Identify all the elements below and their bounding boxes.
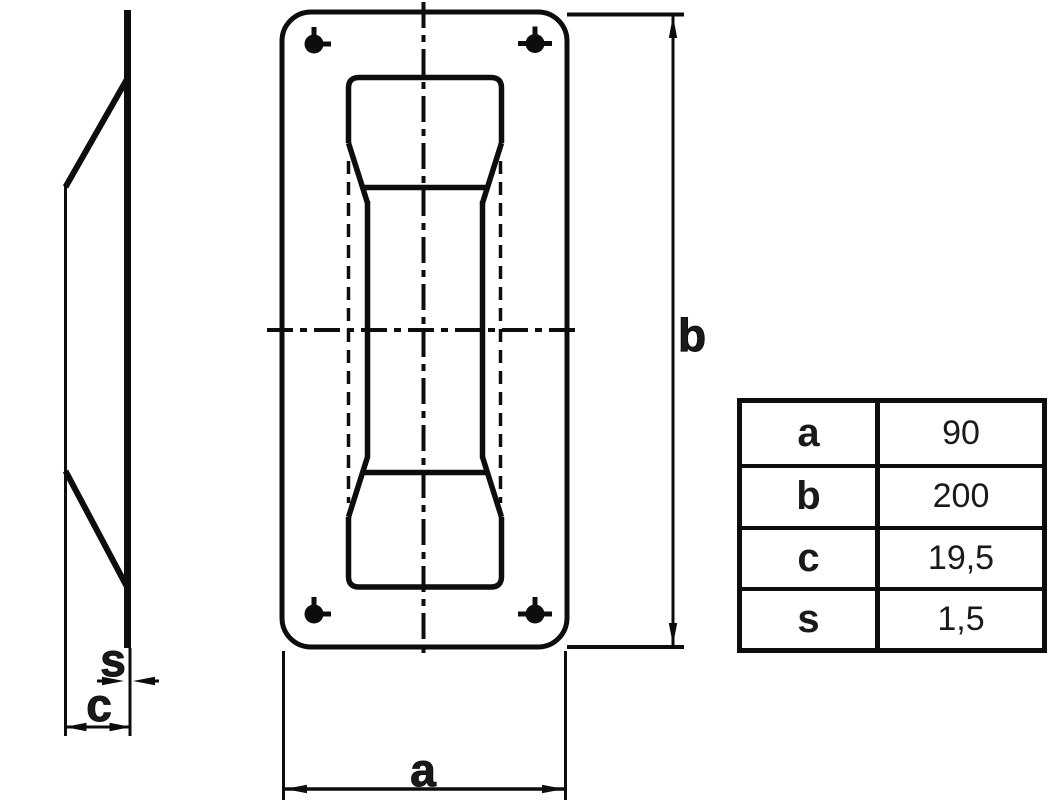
hole-circle: [305, 605, 324, 624]
mounting-hole-bottom-left: [305, 597, 332, 624]
a-dim-arrow-left: [285, 785, 307, 793]
a-dim-arrow-right: [542, 785, 564, 793]
hole-tick-up: [312, 597, 317, 607]
hole-tick-left: [518, 612, 527, 617]
recess-chamfer-top-left: [349, 143, 368, 203]
hole-circle: [526, 605, 545, 624]
dim-label-b: b: [678, 309, 706, 361]
hole-tick-right: [543, 41, 552, 46]
recess-top-chamfer-line: [66, 80, 127, 187]
dimension-a: a: [284, 651, 566, 800]
table-value-c: 19,5: [875, 526, 1042, 587]
b-dim-arrow-bottom: [669, 623, 677, 645]
mounting-hole-bottom-right: [518, 597, 552, 624]
hole-tick-right: [543, 612, 552, 617]
dim-label-a: a: [410, 744, 436, 796]
table-param-c: c: [742, 526, 875, 587]
hole-tick-up: [533, 597, 538, 607]
table-param-b: b: [742, 464, 875, 525]
hole-tick-right: [322, 42, 331, 47]
c-dim-arrow-right: [110, 723, 132, 731]
hole-tick-left: [518, 41, 527, 46]
table-param-a: a: [742, 403, 875, 464]
front-view: [267, 2, 577, 653]
dimension-b: b: [567, 15, 706, 648]
hole-circle: [526, 34, 545, 53]
b-dim-arrow-top: [669, 16, 677, 38]
recess-bottom-chamfer-line: [66, 471, 127, 586]
recess-chamfer-bottom-left: [349, 457, 368, 517]
hole-tick-right: [322, 612, 331, 617]
table-value-b: 200: [875, 464, 1042, 525]
recess-chamfer-top-right: [483, 143, 502, 203]
hole-tick-up: [312, 27, 317, 37]
side-view: s c: [65, 10, 160, 736]
table-param-s: s: [742, 587, 875, 648]
dimension-table: a 90 b 200 c 19,5 s 1,5: [737, 398, 1047, 653]
dimension-c: c: [65, 679, 132, 731]
mounting-hole-top-left: [305, 27, 332, 54]
recess-chamfer-bottom-right: [483, 457, 502, 517]
mounting-hole-top-right: [518, 27, 552, 54]
dim-label-c: c: [86, 679, 112, 731]
c-dim-arrow-left: [65, 723, 87, 731]
table-value-a: 90: [875, 403, 1042, 464]
hole-circle: [305, 35, 324, 54]
technical-drawing-page: s c: [0, 0, 1063, 800]
table-value-s: 1,5: [875, 587, 1042, 648]
hole-tick-up: [533, 27, 538, 37]
